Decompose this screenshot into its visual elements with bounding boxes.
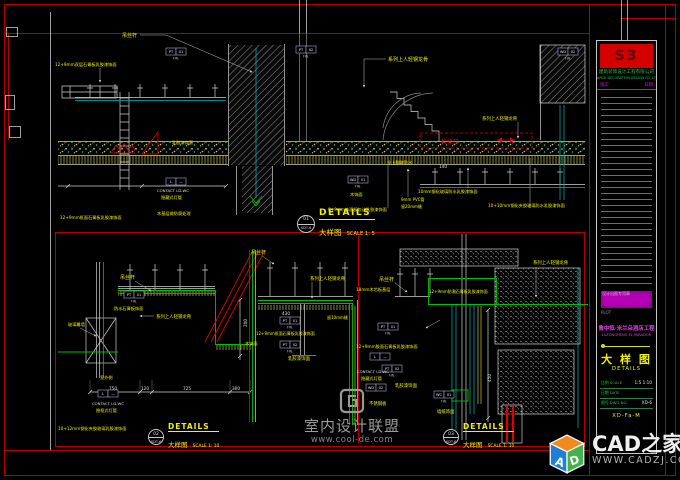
detail-subtitle: 大样图 (168, 441, 188, 449)
annotation-text: 12+9mm双层石膏板乳胶漆饰面 (55, 61, 117, 68)
finish-tag: WD01FIN. (348, 176, 368, 189)
detail-callout-02: 02 XDT-6 DETAILS 大样图 SCALE 1: 10 (148, 423, 219, 451)
svg-text:FIN.: FIN. (389, 374, 395, 378)
detail-title: DETAILS (319, 209, 375, 220)
annotation-text: 9mm PVC管 (401, 196, 425, 202)
field-scale: 比例 SCALE 1:5 1:10 (600, 379, 653, 389)
svg-text:FIN.: FIN. (385, 332, 391, 336)
svg-text:—: — (111, 392, 115, 396)
date-label: 日期 (644, 82, 653, 88)
field-dwgno: 图号 DWG NO. XD-6 (600, 399, 653, 409)
wall-hatch-upper (495, 268, 580, 344)
annotation-text: 12+9mm纸面石膏板乳胶漆饰面 (60, 214, 122, 221)
annotation-text: 木饰面 (245, 340, 258, 347)
annotation-text: 系列上人轻钢龙骨 (156, 313, 192, 320)
annotation-text: 系列上人轻钢龙骨 (533, 259, 569, 266)
annotation-text: 系列上人轻钢龙骨 (482, 115, 518, 122)
plot-note: PLOT (597, 309, 656, 316)
annotation-text: 吊丝杆 (122, 32, 137, 39)
wall-hatch-lower (498, 350, 574, 414)
watermark-cadzj: A D CAD之家 WWW.CADZJ.COM (546, 433, 680, 477)
annotation-text: 墙纸饰面 (437, 408, 455, 415)
leader-lines (100, 35, 518, 197)
svg-text:01: 01 (391, 325, 396, 329)
svg-text:—: — (179, 180, 183, 184)
svg-text:01: 01 (447, 393, 452, 397)
svg-text:FIN.: FIN. (565, 57, 571, 61)
annotation-text: 430 (282, 311, 290, 316)
annotation-text: CONTACT LD-WC (92, 401, 124, 406)
svg-text:01: 01 (137, 293, 142, 297)
detail-02-linework (58, 252, 264, 394)
company-name-en: ARCH DECORATION DESIGN CO.,LTD (597, 76, 656, 80)
annotation-text: 玻璃幕墙 (68, 321, 85, 328)
annotation-text: 隐藏式灯管 (161, 194, 182, 201)
svg-text:02: 02 (571, 50, 576, 54)
company-logo-text: S3 (615, 48, 639, 64)
detail-bubble-03: 03 XDT-6 (443, 429, 459, 445)
svg-text:01: 01 (179, 50, 184, 54)
svg-text:L: L (170, 180, 172, 184)
svg-text:FIN.: FIN. (355, 185, 361, 189)
annotation-text: 12+9mm纸面石膏板乳胶漆饰面 (256, 330, 315, 336)
detail-01-linework (58, 33, 585, 215)
titleblock-fields: 比例 SCALE 1:5 1:10 日期 DATE 图号 DWG NO. XD-… (600, 379, 653, 409)
annotation-text: 725 (183, 386, 191, 391)
svg-text:WC: WC (436, 393, 443, 397)
finish-tag: L— (166, 178, 186, 185)
annotation-text: 18mm木芯板基层 (356, 286, 390, 293)
cool-de-logo (339, 388, 365, 414)
cadzj-logo: A D (546, 433, 588, 477)
slab-hatch (400, 249, 518, 266)
svg-text:02: 02 (309, 48, 314, 52)
annotation-text: CONTACT LD-WC (157, 188, 189, 193)
annotation-text: 乳胶漆饰面 (288, 355, 311, 362)
field-date: 日期 DATE (600, 389, 653, 399)
revision-header: 版次 日期 (597, 81, 656, 90)
detail-ref: XDT-6 (298, 223, 314, 230)
detail-callout-01: 01 XDT-6 DETAILS 大样图 SCALE 1: 5 (297, 209, 375, 239)
annotation-text: 300 (232, 386, 240, 391)
cad-sheet: PT01FIN.PT02FIN.WD02FIN.L—WD01FIN.PT01FI… (0, 0, 680, 480)
annotation-text: 乳胶漆饰面 (172, 139, 193, 146)
svg-text:FIN.: FIN. (441, 400, 447, 404)
project-name-cn: 鲁中恒·米兰朵酒店工程 (597, 326, 656, 333)
detail-subtitle: 大样图 (319, 228, 342, 237)
detail-number: 01 (298, 216, 314, 223)
annotation-text: 留20mm缝 (401, 203, 422, 209)
annotation-text: 120 (141, 386, 149, 391)
svg-text:WD: WD (560, 50, 567, 54)
finish-tag: PT01FIN. (166, 48, 186, 61)
annotation-text: 10+10mm钢化夹胶玻璃防水乳胶漆饰面 (488, 202, 565, 209)
watermark-url: WWW.CADZJ.COM (592, 455, 680, 466)
annotation-text: 140 (439, 164, 447, 169)
finish-tag: PT01FIN. (124, 291, 144, 304)
annotation-text: 检修口 (441, 138, 459, 146)
company-logo: S3 (600, 44, 653, 68)
detail-number: 02 (149, 430, 163, 437)
watermark-name: 室内设计联盟 (296, 418, 408, 435)
annotation-text: 吊丝杆 (379, 276, 394, 283)
annotation-text: 木基层做防腐处理 (157, 210, 191, 217)
annotation-text: 隐藏式灯管 (361, 375, 382, 382)
finish-tag: PT02FIN. (296, 46, 316, 59)
svg-text:02: 02 (293, 343, 298, 347)
north-marker (603, 346, 650, 347)
finish-tag: L— (98, 390, 118, 397)
svg-text:FIN.: FIN. (287, 326, 293, 330)
finish-tag: PT01FIN. (378, 323, 398, 336)
finish-tag: PT01FIN. (280, 317, 300, 330)
detail-callout-03: 03 XDT-6 DETAILS 大样图 SCALE 1: 10 (443, 423, 514, 451)
annotation-text: 留10mm缝 (327, 314, 348, 320)
detail-scale: SCALE 1: 10 (193, 444, 220, 449)
annotation-text: 系列上人轻钢龙骨 (388, 56, 428, 63)
svg-text:02: 02 (395, 367, 400, 371)
annotation-text: 12+9mm防潮石膏板乳胶漆饰面 (429, 288, 488, 294)
svg-text:01: 01 (293, 319, 298, 323)
annotation-text: 室外侧 (100, 374, 113, 381)
watermark-cool-de: 室内设计联盟 www.cool-de.com (296, 388, 408, 445)
floor-screed-right (286, 142, 585, 155)
detail-subtitle: 大样图 (463, 441, 483, 449)
detail-ref: XDT-6 (149, 437, 163, 444)
annotation-text: 450 (487, 374, 492, 382)
detail-number: 03 (444, 430, 458, 437)
watermark-url: www.cool-de.com (296, 435, 408, 445)
svg-text:FIN.: FIN. (287, 350, 293, 354)
design-stamp: 设计出图专用章 (601, 291, 652, 308)
sheet-number: XD-Fa-M (597, 413, 656, 419)
finish-tag: PT02FIN. (280, 341, 300, 354)
annotation-text: 12+9mm胶面石膏板乳胶漆饰面 (356, 343, 418, 350)
titleblock: S3 建筑装饰设计工程有限公司 ARCH DECORATION DESIGN C… (596, 40, 657, 454)
detail-title: DETAILS (168, 423, 219, 432)
annotation-text: 防水石膏板饰面 (114, 305, 143, 312)
svg-text:01: 01 (361, 178, 366, 182)
sheet-title-en: DETAILS (597, 366, 656, 373)
detail-scale: SCALE 1: 10 (488, 444, 515, 449)
svg-text:L: L (374, 355, 376, 359)
sheet-title-cn: 大 样 图 (597, 353, 656, 366)
finish-tag: WC01FIN. (434, 391, 454, 404)
column-hatch (229, 45, 284, 165)
revision-rows (601, 92, 652, 288)
annotation-text: 吊丝杆 (251, 249, 266, 256)
detail-ref: XDT-6 (444, 437, 458, 444)
insulation-left (58, 156, 228, 164)
annotation-text: 全上翻做防水 (387, 159, 413, 166)
annotation-text: 10+12mm钢化夹胶玻璃乳胶漆饰面 (58, 425, 126, 432)
detail-title: DETAILS (463, 423, 514, 432)
annotation-text: 系列上人轻钢龙骨 (310, 275, 346, 282)
finish-tag: L— (370, 353, 390, 360)
annotation-text: 10mm钢化玻璃防水乳胶漆饰面 (418, 188, 478, 195)
svg-text:—: — (383, 355, 387, 359)
svg-text:FIN.: FIN. (303, 55, 309, 59)
detail-scale: SCALE 1: 5 (347, 231, 375, 237)
detail-bubble-01: 01 XDT-6 (297, 215, 315, 233)
annotation-text: CONTACT LD-WC (357, 369, 389, 374)
revision-label: 版次 (600, 82, 609, 88)
svg-text:FIN.: FIN. (173, 57, 179, 61)
detail-bubble-02: 02 XDT-6 (148, 429, 164, 445)
annotation-text: 隐框式灯管 (96, 407, 117, 414)
annotation-text: 木饰面 (350, 191, 363, 198)
watermark-name: CAD之家 (592, 433, 680, 455)
annotation-text: 吊丝杆 (120, 274, 135, 281)
project-name-en: LUZONGHENG EL MIRADOR (597, 333, 656, 338)
stair-steps (390, 92, 439, 142)
svg-text:L: L (102, 392, 104, 396)
annotation-text: 200 (243, 319, 248, 327)
insulation-right (286, 156, 585, 164)
svg-text:FIN.: FIN. (131, 300, 137, 304)
annotation-text: 750 (109, 386, 117, 391)
column-hatch-lower (242, 166, 272, 213)
svg-text:WD: WD (350, 178, 357, 182)
